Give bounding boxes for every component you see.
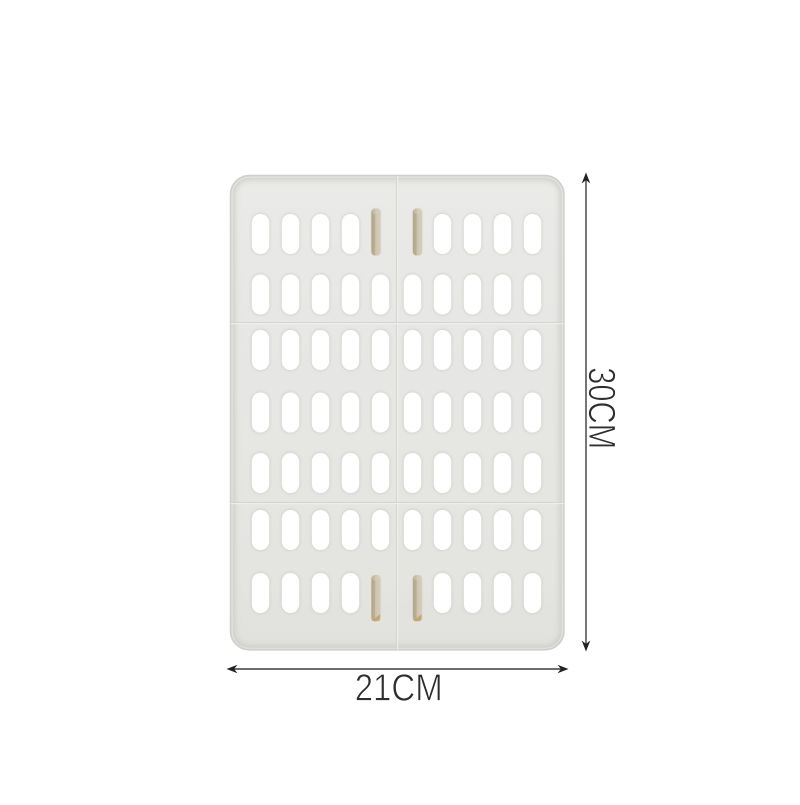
svg-text:30CM: 30CM <box>580 367 622 449</box>
svg-text:21CM: 21CM <box>355 668 443 710</box>
